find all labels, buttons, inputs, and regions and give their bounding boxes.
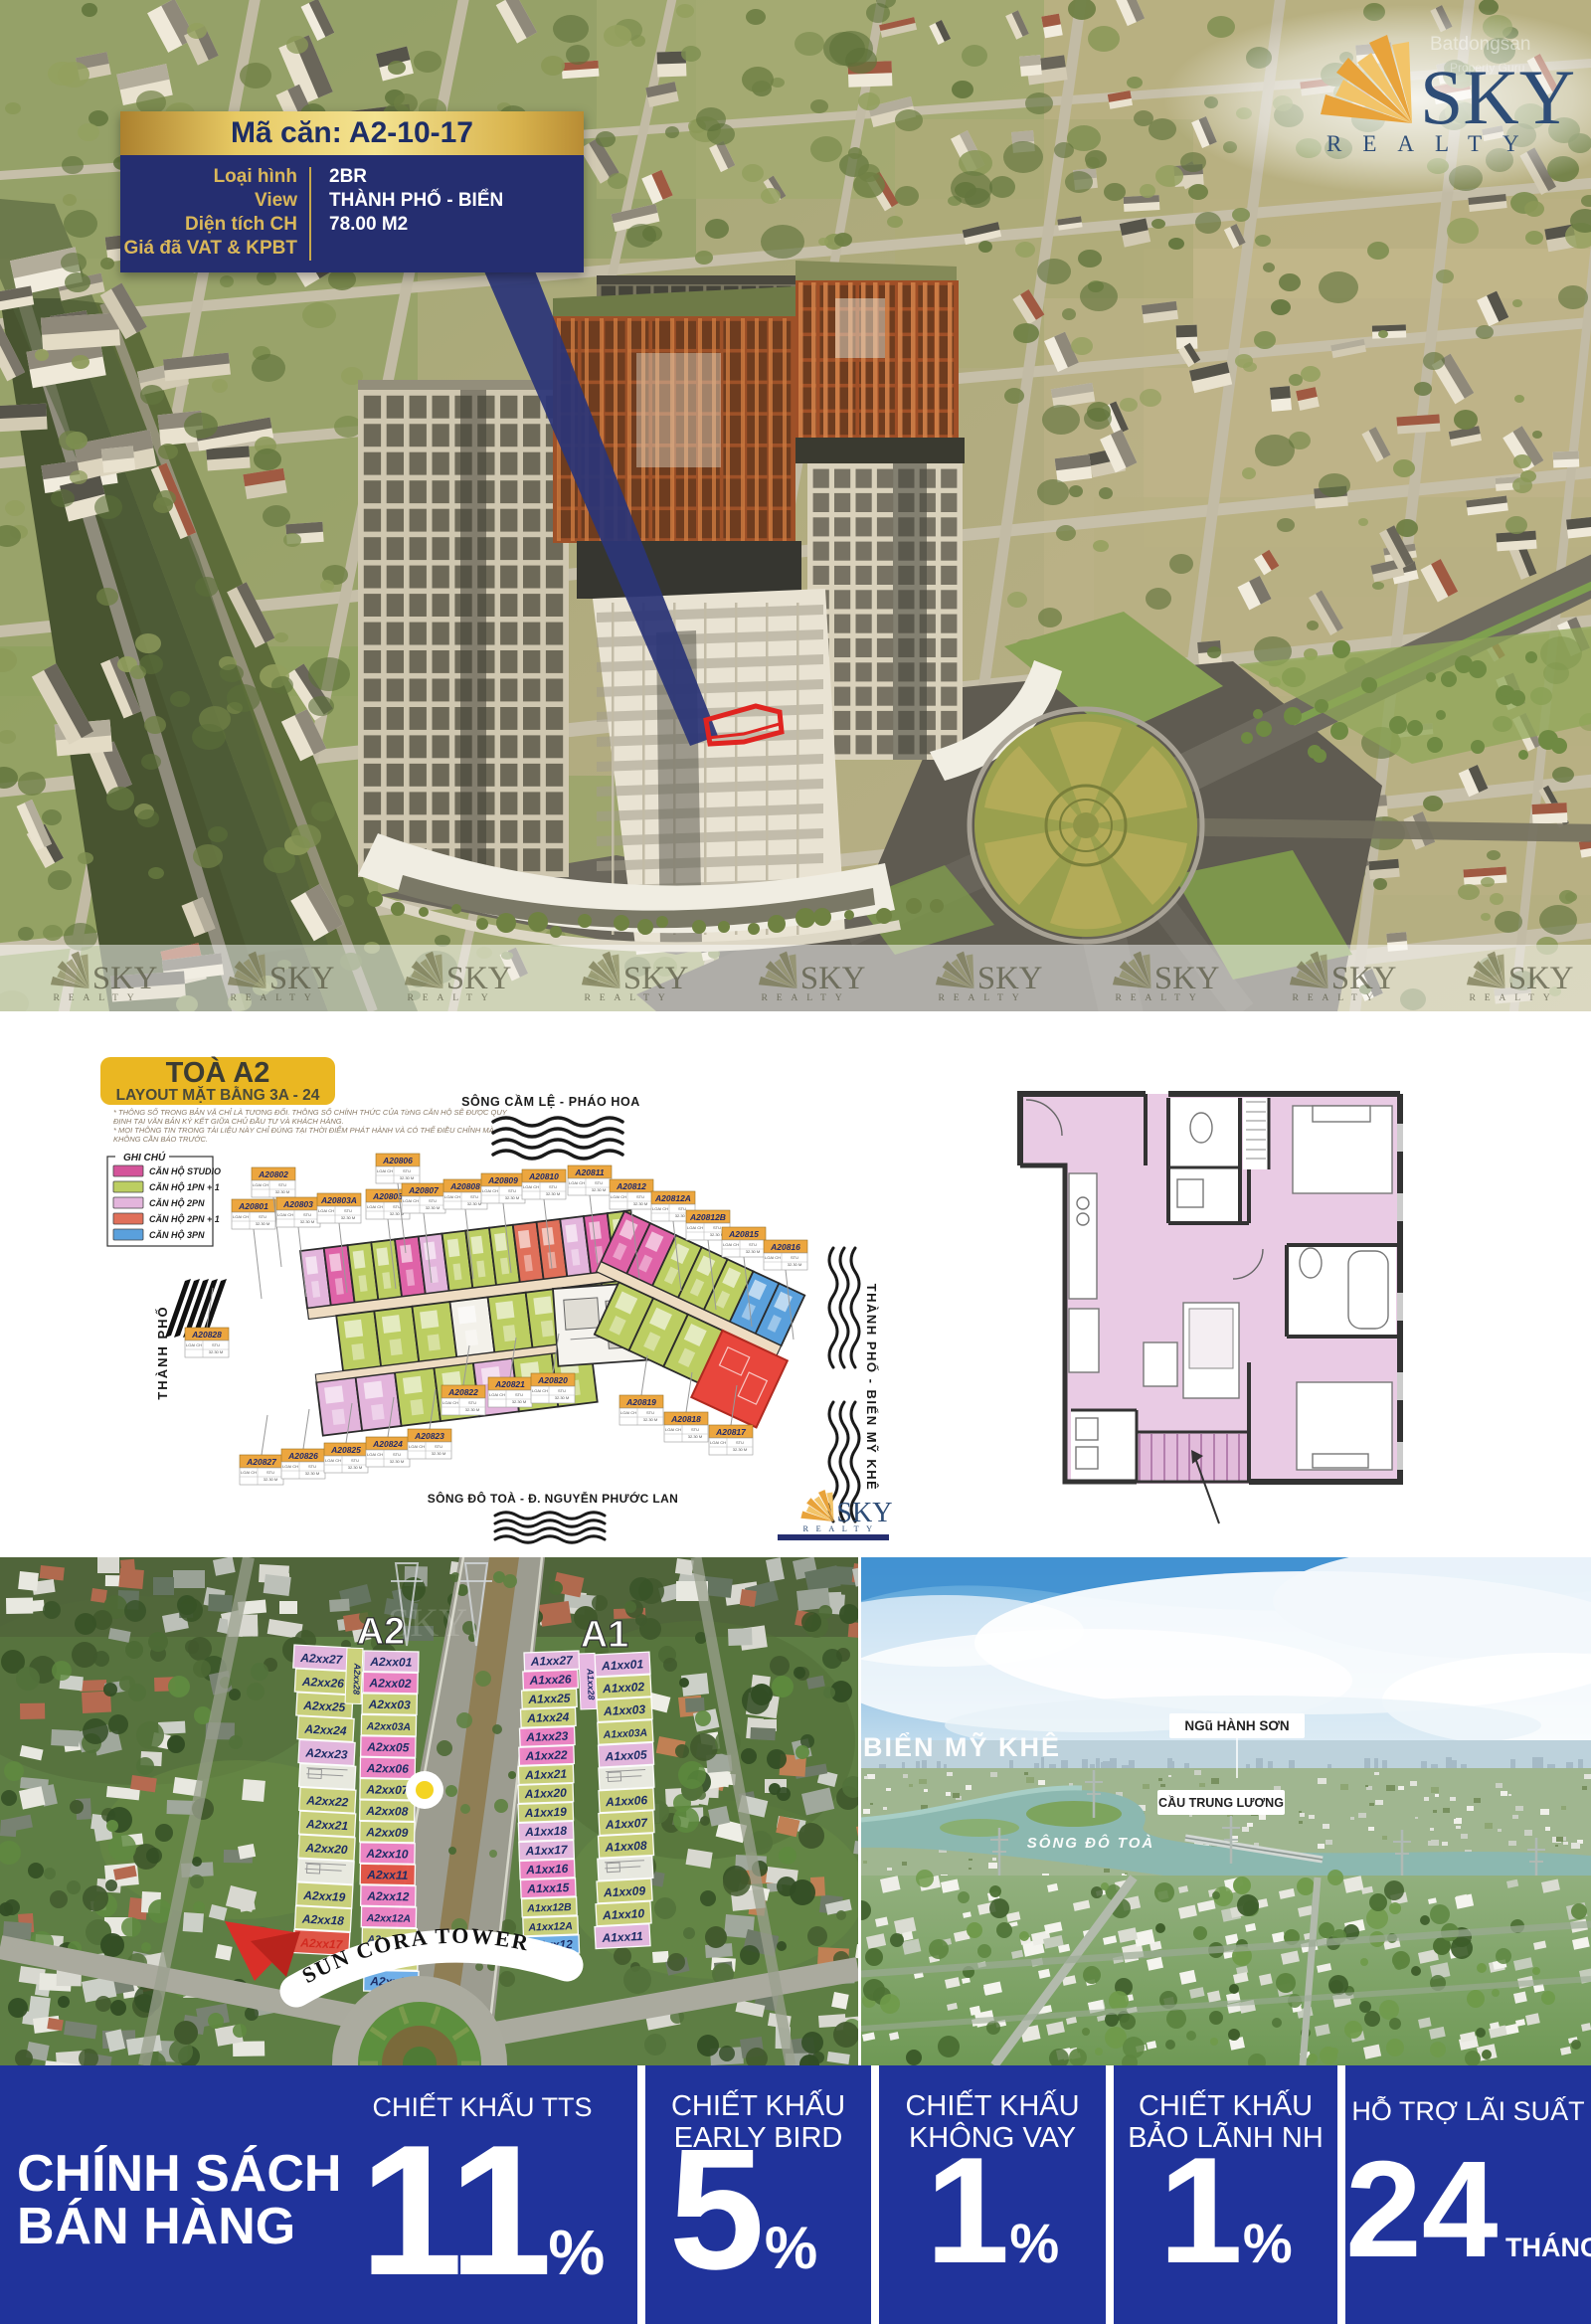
svg-text:A2xx07: A2xx07 [365, 1782, 410, 1797]
svg-text:LOAI CH: LOAI CH [710, 1440, 726, 1445]
svg-text:STU: STU [266, 1470, 274, 1475]
svg-text:A1xx11: A1xx11 [601, 1929, 643, 1945]
svg-text:SKY: SKY [446, 961, 512, 996]
svg-text:STU: STU [393, 1204, 401, 1209]
svg-text:A20818: A20818 [670, 1414, 701, 1424]
svg-text:A20819: A20819 [625, 1397, 656, 1407]
svg-text:A1xx03A: A1xx03A [602, 1727, 647, 1741]
svg-text:CĂN HỘ 2PN + 1: CĂN HỘ 2PN + 1 [149, 1213, 220, 1224]
svg-text:A20827: A20827 [246, 1457, 277, 1467]
svg-text:32.30 M: 32.30 M [275, 1189, 289, 1194]
svg-text:REALTY: REALTY [1469, 992, 1558, 1003]
svg-text:A1xx18: A1xx18 [524, 1824, 568, 1840]
svg-text:STU: STU [691, 1427, 699, 1432]
svg-text:A1xx05: A1xx05 [604, 1747, 647, 1763]
svg-text:A2xx08: A2xx08 [365, 1804, 409, 1819]
svg-text:LOAI CH: LOAI CH [253, 1182, 268, 1187]
svg-text:32.30 M: 32.30 M [264, 1477, 277, 1482]
svg-text:LOAI CH: LOAI CH [241, 1470, 257, 1475]
svg-text:A2xx10: A2xx10 [365, 1847, 409, 1862]
svg-text:REALTY: REALTY [803, 1524, 880, 1533]
svg-text:32.30 M: 32.30 M [465, 1407, 479, 1412]
svg-text:LOAI CH: LOAI CH [569, 1180, 585, 1185]
svg-text:32.30 M: 32.30 M [348, 1465, 362, 1470]
svg-text:A1xx16: A1xx16 [525, 1862, 569, 1877]
svg-text:ĐỊNH TẠI VĂN BẢN KÝ KẾT GIỮA C: ĐỊNH TẠI VĂN BẢN KÝ KẾT GIỮA CHỦ ĐẦU TƯ … [113, 1116, 344, 1126]
svg-text:A2xx19: A2xx19 [302, 1888, 346, 1904]
svg-text:32.30 M: 32.30 M [432, 1451, 445, 1456]
svg-text:A20801: A20801 [238, 1201, 268, 1211]
svg-text:STU: STU [435, 1444, 442, 1449]
svg-text:STU: STU [259, 1214, 266, 1219]
svg-text:Batdongsan: Batdongsan [1430, 34, 1530, 55]
svg-text:32.30 M: 32.30 M [256, 1221, 269, 1226]
svg-text:STU: STU [736, 1440, 744, 1445]
svg-text:A1xx12A: A1xx12A [527, 1920, 573, 1934]
svg-text:* MỌI THÔNG TIN TRONG TÀI LIỆU: * MỌI THÔNG TIN TRONG TÀI LIỆU NÀY CHỈ Đ… [113, 1125, 494, 1135]
svg-text:STU: STU [278, 1182, 286, 1187]
svg-text:STU: STU [749, 1242, 757, 1247]
svg-text:A1: A1 [581, 1614, 629, 1656]
svg-text:A20803: A20803 [282, 1199, 313, 1209]
svg-text:STU: STU [344, 1208, 352, 1213]
svg-text:A1xx25: A1xx25 [527, 1691, 571, 1706]
svg-text:32.30 M: 32.30 M [688, 1434, 702, 1439]
svg-text:32.30 M: 32.30 M [305, 1471, 319, 1476]
svg-text:A20824: A20824 [372, 1439, 403, 1449]
svg-text:A1xx27: A1xx27 [530, 1653, 575, 1669]
svg-text:REALTY: REALTY [1326, 131, 1540, 156]
svg-text:A2xx25: A2xx25 [302, 1698, 346, 1714]
svg-text:A20811: A20811 [574, 1167, 604, 1177]
svg-text:A2xx12A: A2xx12A [366, 1912, 412, 1925]
svg-text:A1xx08: A1xx08 [604, 1839, 647, 1855]
svg-text:32.30 M: 32.30 M [426, 1205, 440, 1210]
svg-text:REALTY: REALTY [53, 992, 142, 1003]
svg-text:NGũ HÀNH SƠN: NGũ HÀNH SƠN [1184, 1718, 1289, 1733]
svg-text:STU: STU [303, 1212, 311, 1217]
svg-text:A2xx27: A2xx27 [299, 1651, 344, 1667]
svg-text:32.30 M: 32.30 M [633, 1201, 647, 1206]
svg-text:CĂN HỘ 2PN: CĂN HỘ 2PN [149, 1197, 205, 1208]
svg-text:A2xx09: A2xx09 [365, 1825, 409, 1840]
svg-text:A2xx18: A2xx18 [301, 1912, 345, 1928]
svg-text:A1xx15: A1xx15 [526, 1880, 570, 1896]
svg-text:LOAI CH: LOAI CH [444, 1194, 460, 1199]
svg-text:STU: STU [393, 1452, 401, 1457]
svg-text:A2xx02: A2xx02 [368, 1676, 412, 1691]
svg-text:SKY: SKY [800, 961, 866, 996]
svg-text:REALTY: REALTY [1292, 992, 1381, 1003]
svg-text:A2xx21: A2xx21 [305, 1817, 349, 1833]
svg-text:32.30 M: 32.30 M [555, 1395, 569, 1400]
svg-text:LOAI CH: LOAI CH [325, 1458, 341, 1463]
svg-text:A20826: A20826 [287, 1451, 318, 1461]
svg-text:STU: STU [558, 1388, 566, 1393]
svg-text:LOAI CH: LOAI CH [532, 1388, 548, 1393]
svg-text:LOAI CH: LOAI CH [186, 1342, 202, 1347]
svg-text:A1xx28: A1xx28 [585, 1668, 596, 1700]
svg-text:32.30 M: 32.30 M [341, 1215, 355, 1220]
svg-text:SÔNG ĐÔ TOÀ - Đ. NGUYỄN PHƯỚC: SÔNG ĐÔ TOÀ - Đ. NGUYỄN PHƯỚC LAN [428, 1491, 679, 1506]
svg-text:32.30 M: 32.30 M [512, 1399, 526, 1404]
svg-text:A2xx22: A2xx22 [305, 1793, 349, 1809]
svg-text:A2xx24: A2xx24 [303, 1722, 347, 1738]
svg-text:REALTY: REALTY [407, 992, 496, 1003]
svg-text:LOAI CH: LOAI CH [482, 1188, 498, 1193]
svg-text:LOAI CH: LOAI CH [442, 1400, 458, 1405]
svg-text:A1xx12B: A1xx12B [526, 1901, 572, 1915]
svg-text:A1xx24: A1xx24 [526, 1709, 570, 1725]
svg-text:SÔNG ĐÔ TOÀ: SÔNG ĐÔ TOÀ [1027, 1834, 1154, 1852]
svg-text:A1xx20: A1xx20 [524, 1786, 568, 1802]
svg-text:STU: STU [351, 1458, 359, 1463]
svg-text:32.30 M: 32.30 M [467, 1201, 481, 1206]
svg-text:REALTY: REALTY [938, 992, 1027, 1003]
svg-text:REALTY: REALTY [761, 992, 850, 1003]
svg-text:32.30 M: 32.30 M [733, 1447, 747, 1452]
svg-text:STU: STU [470, 1194, 478, 1199]
svg-text:A20822: A20822 [447, 1387, 478, 1397]
svg-text:STU: STU [595, 1180, 603, 1185]
svg-text:STU: STU [678, 1206, 686, 1211]
svg-text:LOAI CH: LOAI CH [377, 1168, 393, 1173]
svg-text:LOAI CH: LOAI CH [282, 1464, 298, 1469]
svg-text:A1xx22: A1xx22 [524, 1748, 568, 1764]
svg-text:LOAI CH: LOAI CH [652, 1206, 668, 1211]
svg-text:A20808: A20808 [449, 1181, 480, 1191]
svg-text:A20805: A20805 [372, 1191, 403, 1201]
svg-text:STU: STU [549, 1184, 557, 1189]
svg-text:LOAI CH: LOAI CH [611, 1194, 626, 1199]
svg-text:A20806: A20806 [382, 1156, 413, 1165]
svg-text:STU: STU [468, 1400, 476, 1405]
svg-text:SKY: SKY [1508, 961, 1574, 996]
svg-text:A2xx11: A2xx11 [366, 1868, 409, 1882]
svg-text:STU: STU [308, 1464, 316, 1469]
svg-text:32.30 M: 32.30 M [209, 1349, 223, 1354]
svg-text:GHI CHÚ: GHI CHÚ [123, 1151, 166, 1163]
svg-text:CĂN HỘ 1PN + 1: CĂN HỘ 1PN + 1 [149, 1181, 220, 1192]
svg-text:A20828: A20828 [191, 1330, 222, 1340]
svg-text:STU: STU [403, 1168, 411, 1173]
svg-text:A20820: A20820 [537, 1375, 568, 1385]
svg-text:STU: STU [713, 1225, 721, 1230]
svg-text:32.30 M: 32.30 M [592, 1187, 606, 1192]
svg-text:SKY: SKY [1154, 961, 1220, 996]
svg-text:* THÔNG SỐ TRONG BẢN VẶ CHỈ LÀ: * THÔNG SỐ TRONG BẢN VẶ CHỈ LÀ TƯƠNG ĐỐI… [113, 1108, 508, 1117]
svg-text:A1xx09: A1xx09 [603, 1883, 646, 1899]
svg-text:SÔNG CẦM LỆ - PHÁO HOA: SÔNG CẦM LỆ - PHÁO HOA [461, 1094, 640, 1109]
svg-text:CĂN HỘ STUDIO: CĂN HỘ STUDIO [149, 1165, 221, 1176]
svg-text:LOAI CH: LOAI CH [665, 1427, 681, 1432]
svg-text:STU: STU [636, 1194, 644, 1199]
svg-text:CẦU TRUNG LƯƠNG: CẦU TRUNG LƯƠNG [1158, 1795, 1284, 1810]
svg-text:STU: STU [515, 1392, 523, 1397]
svg-text:A1xx19: A1xx19 [524, 1805, 568, 1821]
svg-text:LOAI CH: LOAI CH [277, 1212, 293, 1217]
svg-text:REALTY: REALTY [1115, 992, 1204, 1003]
svg-text:STU: STU [646, 1410, 654, 1415]
svg-text:A20809: A20809 [487, 1175, 518, 1185]
svg-text:A1xx07: A1xx07 [605, 1816, 649, 1832]
svg-text:LOAI CH: LOAI CH [765, 1255, 781, 1260]
svg-text:THÀNH PHỐ: THÀNH PHỐ [155, 1305, 170, 1399]
svg-text:STU: STU [508, 1188, 516, 1193]
svg-text:A2xx05: A2xx05 [366, 1740, 410, 1755]
svg-text:A1xx06: A1xx06 [605, 1793, 648, 1809]
svg-text:A20802: A20802 [258, 1169, 288, 1179]
svg-text:LOAI CH: LOAI CH [687, 1225, 703, 1230]
svg-text:LOAI CH: LOAI CH [233, 1214, 249, 1219]
svg-text:SKY: SKY [977, 961, 1043, 996]
svg-text:REALTY: REALTY [584, 992, 673, 1003]
svg-text:A20823: A20823 [414, 1431, 444, 1441]
svg-text:LOAI CH: LOAI CH [723, 1242, 739, 1247]
svg-text:BIỂN MỸ KHÊ: BIỂN MỸ KHÊ [863, 1731, 1061, 1762]
svg-text:STU: STU [212, 1342, 220, 1347]
svg-text:A2xx26: A2xx26 [301, 1675, 345, 1691]
svg-text:A2xx23: A2xx23 [304, 1745, 348, 1761]
svg-text:Property Guru: Property Guru [1450, 61, 1524, 75]
svg-text:32.30 M: 32.30 M [546, 1191, 560, 1196]
svg-text:CĂN HỘ 3PN: CĂN HỘ 3PN [149, 1229, 205, 1240]
svg-text:32.30 M: 32.30 M [300, 1219, 314, 1224]
svg-text:A20812B: A20812B [689, 1212, 726, 1222]
svg-text:A20825: A20825 [330, 1445, 361, 1455]
svg-text:TOÀ A2: TOÀ A2 [166, 1055, 270, 1089]
svg-text:STU: STU [791, 1255, 798, 1260]
svg-text:LOAI CH: LOAI CH [367, 1204, 383, 1209]
svg-text:A2xx12: A2xx12 [366, 1889, 410, 1904]
svg-text:A20812: A20812 [616, 1181, 646, 1191]
svg-text:A2: A2 [357, 1611, 406, 1653]
svg-text:KHÔNG CẦN BÁO TRƯỚC.: KHÔNG CẦN BÁO TRƯỚC. [113, 1134, 208, 1144]
svg-text:A1xx10: A1xx10 [602, 1906, 645, 1922]
svg-text:LOAI CH: LOAI CH [523, 1184, 539, 1189]
svg-text:A2xx20: A2xx20 [304, 1841, 348, 1857]
svg-text:REALTY: REALTY [230, 992, 319, 1003]
svg-text:A20812A: A20812A [654, 1193, 691, 1203]
svg-text:STU: STU [429, 1198, 437, 1203]
svg-text:LOAI CH: LOAI CH [318, 1208, 334, 1213]
svg-text:32.30 M: 32.30 M [788, 1262, 801, 1267]
svg-text:A1xx26: A1xx26 [528, 1672, 572, 1688]
svg-text:SKY: SKY [269, 961, 335, 996]
svg-text:A1xx01: A1xx01 [601, 1657, 644, 1673]
svg-text:LOAI CH: LOAI CH [620, 1410, 636, 1415]
svg-text:A1xx21: A1xx21 [524, 1767, 568, 1783]
svg-text:A20810: A20810 [528, 1171, 559, 1181]
svg-text:SKY: SKY [92, 961, 158, 996]
svg-text:A20803A: A20803A [320, 1195, 357, 1205]
svg-text:A20821: A20821 [494, 1379, 525, 1389]
svg-text:LAYOUT MẶT BẰNG 3A - 24: LAYOUT MẶT BẰNG 3A - 24 [116, 1086, 320, 1104]
svg-text:A20815: A20815 [728, 1229, 759, 1239]
svg-text:SKY: SKY [623, 961, 689, 996]
svg-text:LOAI CH: LOAI CH [409, 1444, 425, 1449]
svg-text:A1xx23: A1xx23 [525, 1729, 569, 1745]
svg-text:A2xx01: A2xx01 [369, 1655, 413, 1670]
svg-text:A2xx03: A2xx03 [368, 1698, 412, 1712]
svg-text:A1xx03: A1xx03 [603, 1702, 646, 1718]
svg-text:A2xx28: A2xx28 [351, 1662, 362, 1695]
svg-text:32.30 M: 32.30 M [400, 1175, 414, 1180]
svg-text:LOAI CH: LOAI CH [367, 1452, 383, 1457]
svg-text:32.30 M: 32.30 M [643, 1417, 657, 1422]
svg-text:32.30 M: 32.30 M [505, 1195, 519, 1200]
svg-text:LOAI CH: LOAI CH [489, 1392, 505, 1397]
svg-text:A2xx03A: A2xx03A [366, 1720, 412, 1733]
svg-text:SKY: SKY [836, 1498, 892, 1528]
svg-text:A20817: A20817 [715, 1427, 747, 1437]
svg-text:A20816: A20816 [770, 1242, 800, 1252]
svg-text:32.30 M: 32.30 M [390, 1459, 404, 1464]
svg-text:SKY: SKY [1331, 961, 1397, 996]
svg-text:32.30 M: 32.30 M [746, 1249, 760, 1254]
svg-text:LOAI CH: LOAI CH [403, 1198, 419, 1203]
svg-text:A2xx06: A2xx06 [366, 1761, 410, 1776]
svg-text:A1xx17: A1xx17 [524, 1843, 569, 1859]
svg-text:THÀNH PHỐ - BIỂN MỸ KHÊ: THÀNH PHỐ - BIỂN MỸ KHÊ [864, 1284, 879, 1492]
svg-text:A20807: A20807 [408, 1185, 440, 1195]
svg-text:A1xx02: A1xx02 [602, 1680, 645, 1696]
